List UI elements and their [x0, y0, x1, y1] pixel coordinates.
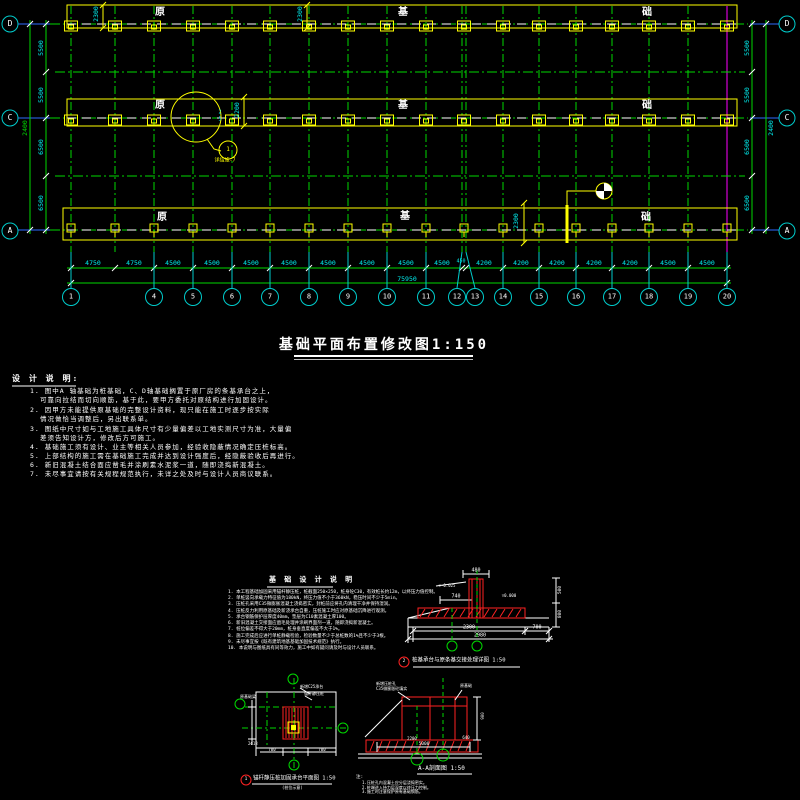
- design-note-line: 差须告知设计方，修改后方可施工。: [40, 435, 160, 442]
- dim-value: 5500: [744, 87, 751, 103]
- dim-value: 6500: [38, 139, 45, 155]
- dim-value: 2400: [22, 120, 29, 136]
- axis-number: 18: [645, 294, 653, 301]
- ref-bubble-number: 1: [226, 147, 230, 153]
- axis-centerlines-white: [67, 24, 737, 230]
- leader-label: 新增C25承台: [300, 685, 323, 689]
- dim-value: 900: [481, 712, 485, 719]
- axis-number: 20: [723, 294, 731, 301]
- foundation-note-line: 7. 桩位偏差不得大于20mm，桩身垂直度偏差不大于1%。: [228, 628, 342, 633]
- foundation-pads-row-c: [65, 115, 734, 125]
- dim-value: 5500: [744, 40, 751, 56]
- dim-value: 800: [559, 610, 564, 618]
- detail-a-section: [399, 570, 560, 667]
- band-label-char: 础: [642, 8, 652, 18]
- section-marker: [567, 183, 612, 205]
- axis-bubbles-right: [779, 16, 795, 239]
- axis-number: 13: [471, 294, 479, 301]
- dim-value: 480: [471, 569, 480, 574]
- leader-label: 锚杆静压桩: [304, 692, 324, 696]
- axis-number: 8: [307, 294, 311, 301]
- dim-ticks-sides: [27, 21, 769, 233]
- band-label-char: 原: [155, 101, 165, 111]
- dim-value: 2980: [474, 634, 486, 639]
- band-label-char: 原: [157, 213, 167, 223]
- design-note-line: 3. 图纸中尺寸如与工地施工具体尺寸有少量偏差以工地实测尺寸为准，大量偏: [30, 426, 292, 433]
- dim-value: 4500: [699, 260, 715, 267]
- dim-value: 2300: [513, 213, 520, 229]
- dim-value: 4500: [434, 260, 450, 267]
- existing-foundation-bands: [63, 5, 737, 240]
- design-note-line: 2. 因甲方未能提供原基础的完整设计资料，现只能在施工时逐步按实际: [30, 407, 270, 414]
- dim-value: 4200: [476, 260, 492, 267]
- leader-label: C35微膨胀砼填实: [376, 687, 407, 691]
- dim-value: 4200: [513, 260, 529, 267]
- detail-subcaption: (桩位示意): [282, 786, 303, 790]
- dim-lines-yellow: [100, 2, 527, 246]
- axis-number: 1: [69, 294, 73, 301]
- dim-value: 2300: [463, 626, 475, 631]
- band-label-char: 础: [641, 213, 651, 223]
- dim-value: 2300: [93, 6, 100, 22]
- design-note-line: 4. 基础施工须有设计、业主等相关人员参加，经验收隐蔽情况确定压桩标高。: [30, 444, 292, 451]
- cad-canvas: D C A D C A 1 4 5 6 7 8 9 10 11 12 13 14…: [0, 0, 800, 800]
- dim-value: 700: [318, 748, 325, 752]
- dim-value: 2200: [407, 737, 417, 741]
- foundation-note-line: 2. 单桩竖向承载力特征值为180kN，终压力值不小于360kN，稳压时间不少于…: [228, 597, 400, 602]
- dim-value: 2200: [234, 102, 241, 118]
- axis-number: 7: [268, 294, 272, 301]
- note-line: 3.施工时注意保护原有基础钢筋。: [362, 790, 423, 794]
- axis-number: 5: [191, 294, 195, 301]
- foundation-note-line: 5. 承台钢筋保护层厚度40mm，垫层为C10素混凝土厚100。: [228, 616, 349, 621]
- design-note-line: 6. 新旧混凝土结合面应凿毛并涂刷素水泥浆一道，随即浇捣新混凝土。: [30, 462, 270, 469]
- dim-value: 5500: [38, 40, 45, 56]
- dim-value: 4500: [204, 260, 220, 267]
- dim-value: 4500: [320, 260, 336, 267]
- axis-label-c-right: C: [785, 114, 790, 122]
- detail-caption-number: 1: [245, 778, 248, 783]
- dim-value: 4200: [586, 260, 602, 267]
- axis-number: 16: [572, 294, 580, 301]
- dim-value: 6500: [744, 195, 751, 211]
- dim-value: 4750: [126, 260, 142, 267]
- dim-value: 500: [559, 586, 564, 594]
- axis-number: 10: [383, 294, 391, 301]
- ref-bubble-note: 详结施-7: [214, 159, 235, 164]
- axis-number: 12: [453, 294, 461, 301]
- dim-value: 700: [268, 748, 275, 752]
- design-note-line: 7. 未尽事宜请按有关规程规范执行，未详之处及时与设计人员商议联系。: [30, 471, 277, 478]
- axis-number: 4: [152, 294, 156, 301]
- axis-number: 15: [535, 294, 543, 301]
- foundation-note-line: 9. 未尽事宜按《既有建筑地基基础加固技术规范》执行。: [228, 641, 344, 646]
- dim-value: 4500: [243, 260, 259, 267]
- rebar-callout: 2Φ18: [248, 742, 258, 746]
- foundation-note-line: 4. 压桩反力利用原基础及新浇承台自重，压桩施工时应对原基础沉降进行观测。: [228, 610, 389, 615]
- axis-label-a-left: A: [8, 227, 13, 235]
- foundation-note-line: 1. 本工程基础加固采用锚杆静压桩，桩截面250×250，桩身砼C30，有效桩长…: [228, 591, 438, 596]
- dim-value: 740: [451, 595, 460, 600]
- axis-number: 9: [346, 294, 350, 301]
- axis-number: 11: [422, 294, 430, 301]
- band-label-char: 基: [400, 212, 410, 222]
- dim-value: 4200: [549, 260, 565, 267]
- detail-caption: 锚杆静压桩加固承台平面图 1:50: [253, 776, 336, 782]
- design-note-line: 情况做恰当调整后，另出联系单。: [40, 416, 153, 423]
- dim-value: 2300: [297, 6, 304, 22]
- foundation-pads-row-d: [65, 21, 734, 31]
- dim-value: 4200: [622, 260, 638, 267]
- axis-connector-lines: [18, 24, 779, 230]
- detail-caption: A-A剖面图 1:50: [418, 766, 465, 772]
- dim-value: 700: [532, 626, 541, 631]
- foundation-note-line: 3. 压桩孔采用C35微膨胀混凝土浇捣密实，封桩前应将孔内清理干净并保持湿润。: [228, 603, 393, 608]
- dim-total-value: 75950: [397, 276, 417, 283]
- design-notes-header: 设 计 说 明:: [12, 375, 79, 383]
- dim-small-value: 5: [218, 118, 221, 123]
- level-mark: ▽0.000: [502, 594, 516, 598]
- drawing-title: 基础平面布置修改图1:150: [279, 338, 489, 352]
- dim-value: 450: [456, 260, 465, 265]
- leader-label: 原基础: [460, 684, 472, 688]
- dim-value: 6500: [744, 139, 751, 155]
- band-label-char: 基: [398, 101, 408, 111]
- axis-number: 17: [608, 294, 616, 301]
- dim-value: 4500: [398, 260, 414, 267]
- dim-value: 2400: [768, 120, 775, 136]
- dim-value: 5000: [419, 743, 430, 748]
- design-note-line: 可靠向拉结而切向顺筋，基于此，要甲方委托对原结构进行加固设计。: [40, 397, 273, 404]
- dim-value: 640: [462, 736, 469, 740]
- axis-bubbles-bottom: [63, 289, 736, 306]
- axis-number: 19: [684, 294, 692, 301]
- axis-number: 6: [230, 294, 234, 301]
- dim-value: 4500: [660, 260, 676, 267]
- detail-c-section: [358, 678, 482, 774]
- level-mark: ▽-0.025: [439, 584, 456, 588]
- dim-value: 6500: [38, 195, 45, 211]
- plan-grid-horizontals: [50, 24, 748, 230]
- band-label-char: 基: [398, 8, 408, 18]
- band-label-char: 原: [155, 8, 165, 18]
- band-label-char: 础: [642, 101, 652, 111]
- dim-lines-sides: [30, 20, 766, 234]
- foundation-note-line: 10. 本说明与图纸具有同等效力，施工中如有疑问请及时与设计人员联系。: [228, 647, 378, 652]
- axis-label-d-left: D: [8, 20, 13, 28]
- dim-value: 4500: [165, 260, 181, 267]
- detail-caption-number: 2: [403, 660, 406, 665]
- foundation-note-line: 6. 新旧混凝土交接面应凿毛处理并涂刷界面剂一道，随即浇捣新混凝土。: [228, 622, 376, 627]
- dim-value: 5500: [38, 87, 45, 103]
- foundation-notes-header: 基 础 设 计 说 明: [269, 577, 354, 584]
- axis-label-c-left: C: [8, 114, 13, 122]
- detail-b-plan: [235, 674, 348, 785]
- axis-label-a-right: A: [785, 227, 790, 235]
- axis-label-d-right: D: [785, 20, 790, 28]
- design-note-line: 5. 上部结构的施工需在基础施工完成并达到设计强度后，经隐蔽验收后再进行。: [30, 453, 300, 460]
- dim-value: 4500: [359, 260, 375, 267]
- dim-value: 4750: [85, 260, 101, 267]
- foundation-note-line: 8. 施工完成后应进行单桩静载检验，检验数量不少于总桩数的1%且不少于3根。: [228, 635, 388, 640]
- dim-value: 4500: [281, 260, 297, 267]
- detail-caption: 桩基承台与原条基交接处理详图 1:50: [412, 658, 506, 664]
- leader-label: 原基础梁: [240, 695, 256, 699]
- axis-number: 14: [499, 294, 507, 301]
- dim-small-value: 2: [218, 111, 221, 116]
- axis-bubbles-left: [2, 16, 18, 239]
- design-note-line: 1. 图中A 轴基础为桩基础，C、D轴基础搁置于原厂房的条基承台之上，: [30, 388, 274, 395]
